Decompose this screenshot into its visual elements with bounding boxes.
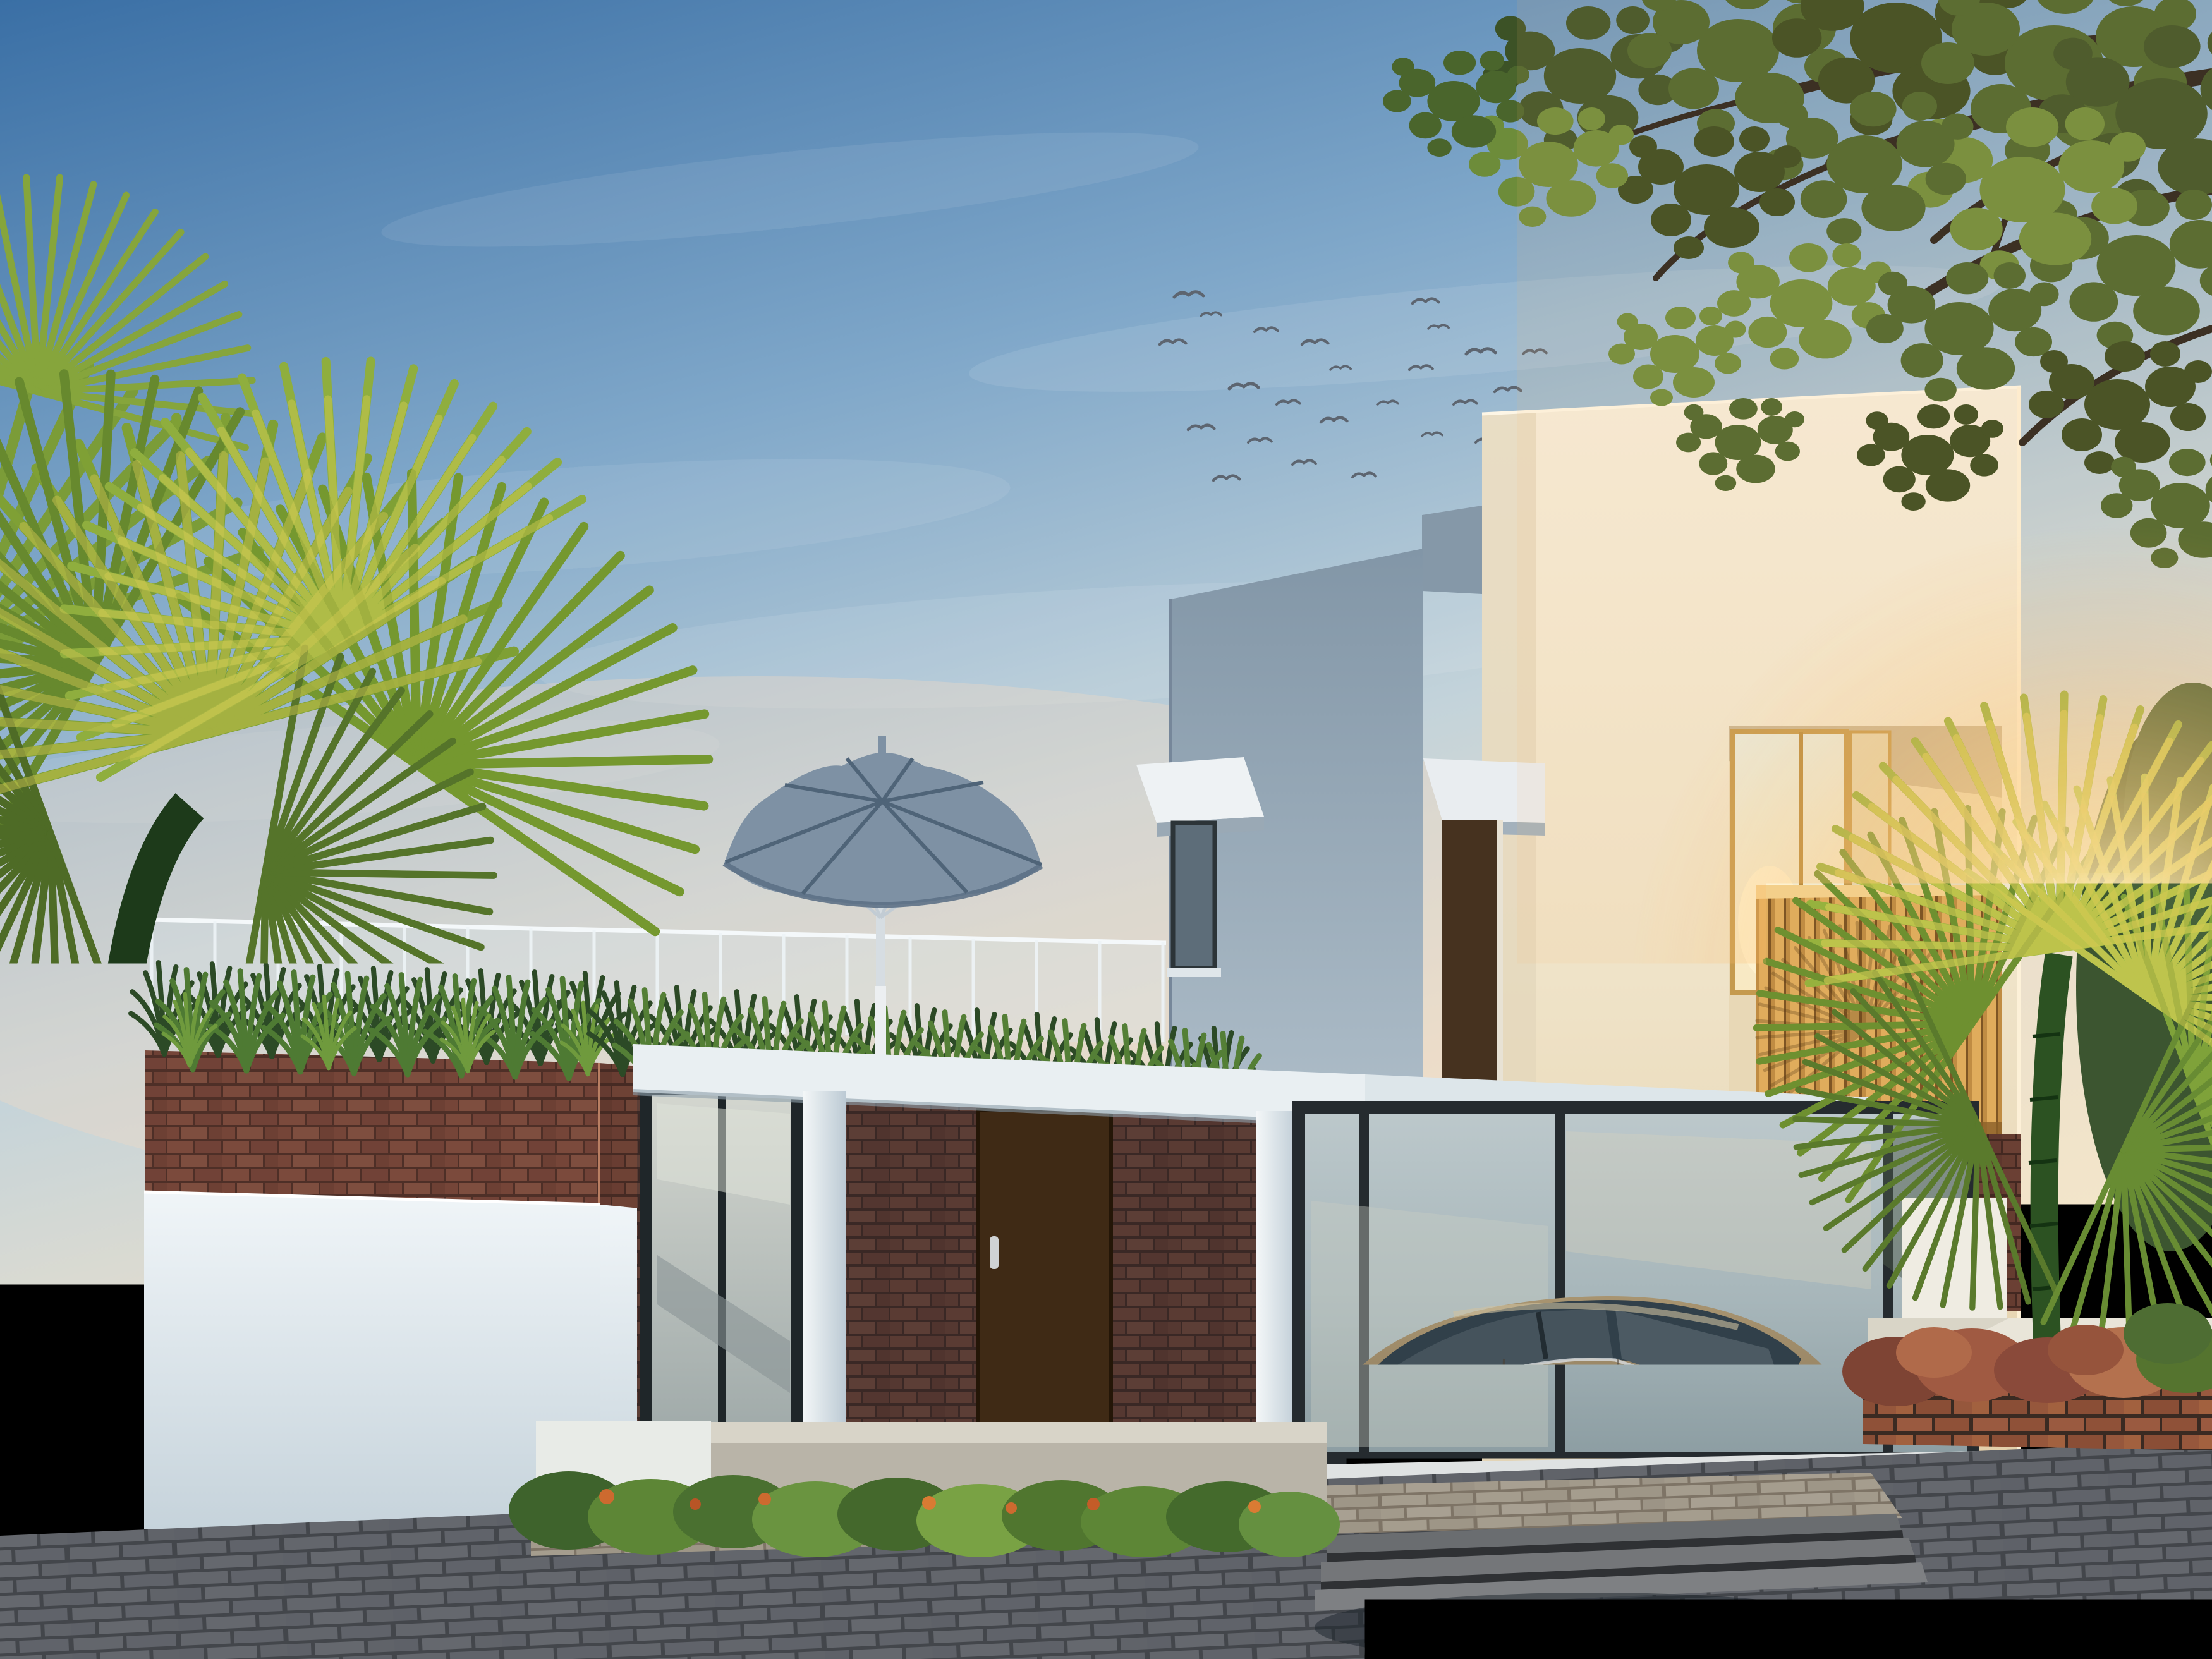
villa-render-stage bbox=[0, 0, 2212, 1659]
sun-glare bbox=[1517, 0, 2212, 1659]
b-pillar bbox=[372, 1301, 412, 1349]
seat-silhouette bbox=[468, 1325, 544, 1368]
tower-window bbox=[1173, 823, 1215, 968]
upper-door-window bbox=[1442, 820, 1497, 1086]
villa-render bbox=[0, 0, 2212, 1659]
window-canopy-left bbox=[1136, 757, 1264, 823]
front-wheel bbox=[1313, 1499, 1407, 1620]
door-handle bbox=[990, 1236, 999, 1269]
parapet-step bbox=[1422, 506, 1482, 594]
